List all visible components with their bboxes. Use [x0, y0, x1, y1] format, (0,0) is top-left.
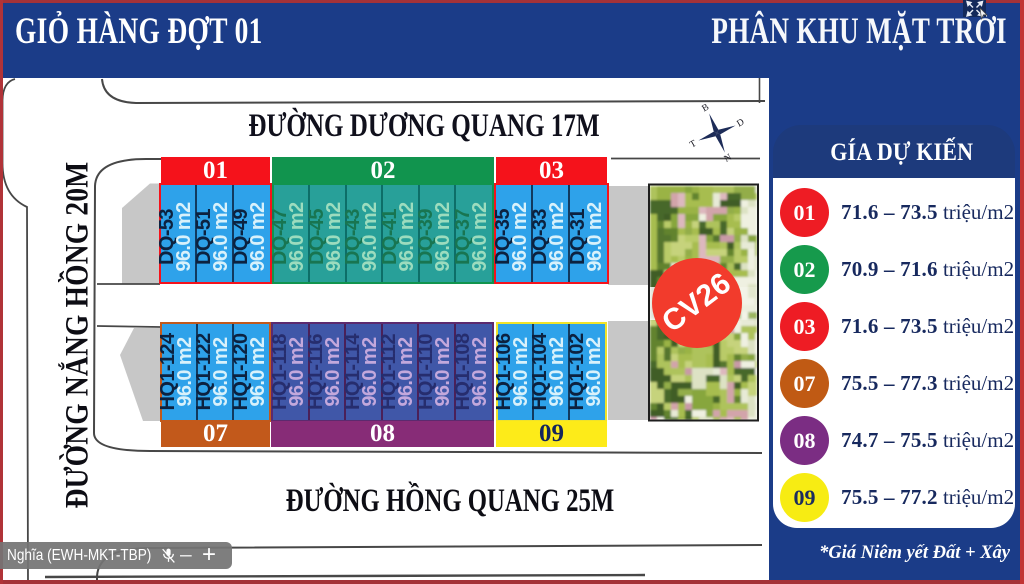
svg-text:D: D [735, 117, 746, 129]
svg-text:B: B [700, 103, 710, 115]
svg-text:T: T [688, 139, 698, 151]
svg-text:N: N [723, 153, 734, 165]
